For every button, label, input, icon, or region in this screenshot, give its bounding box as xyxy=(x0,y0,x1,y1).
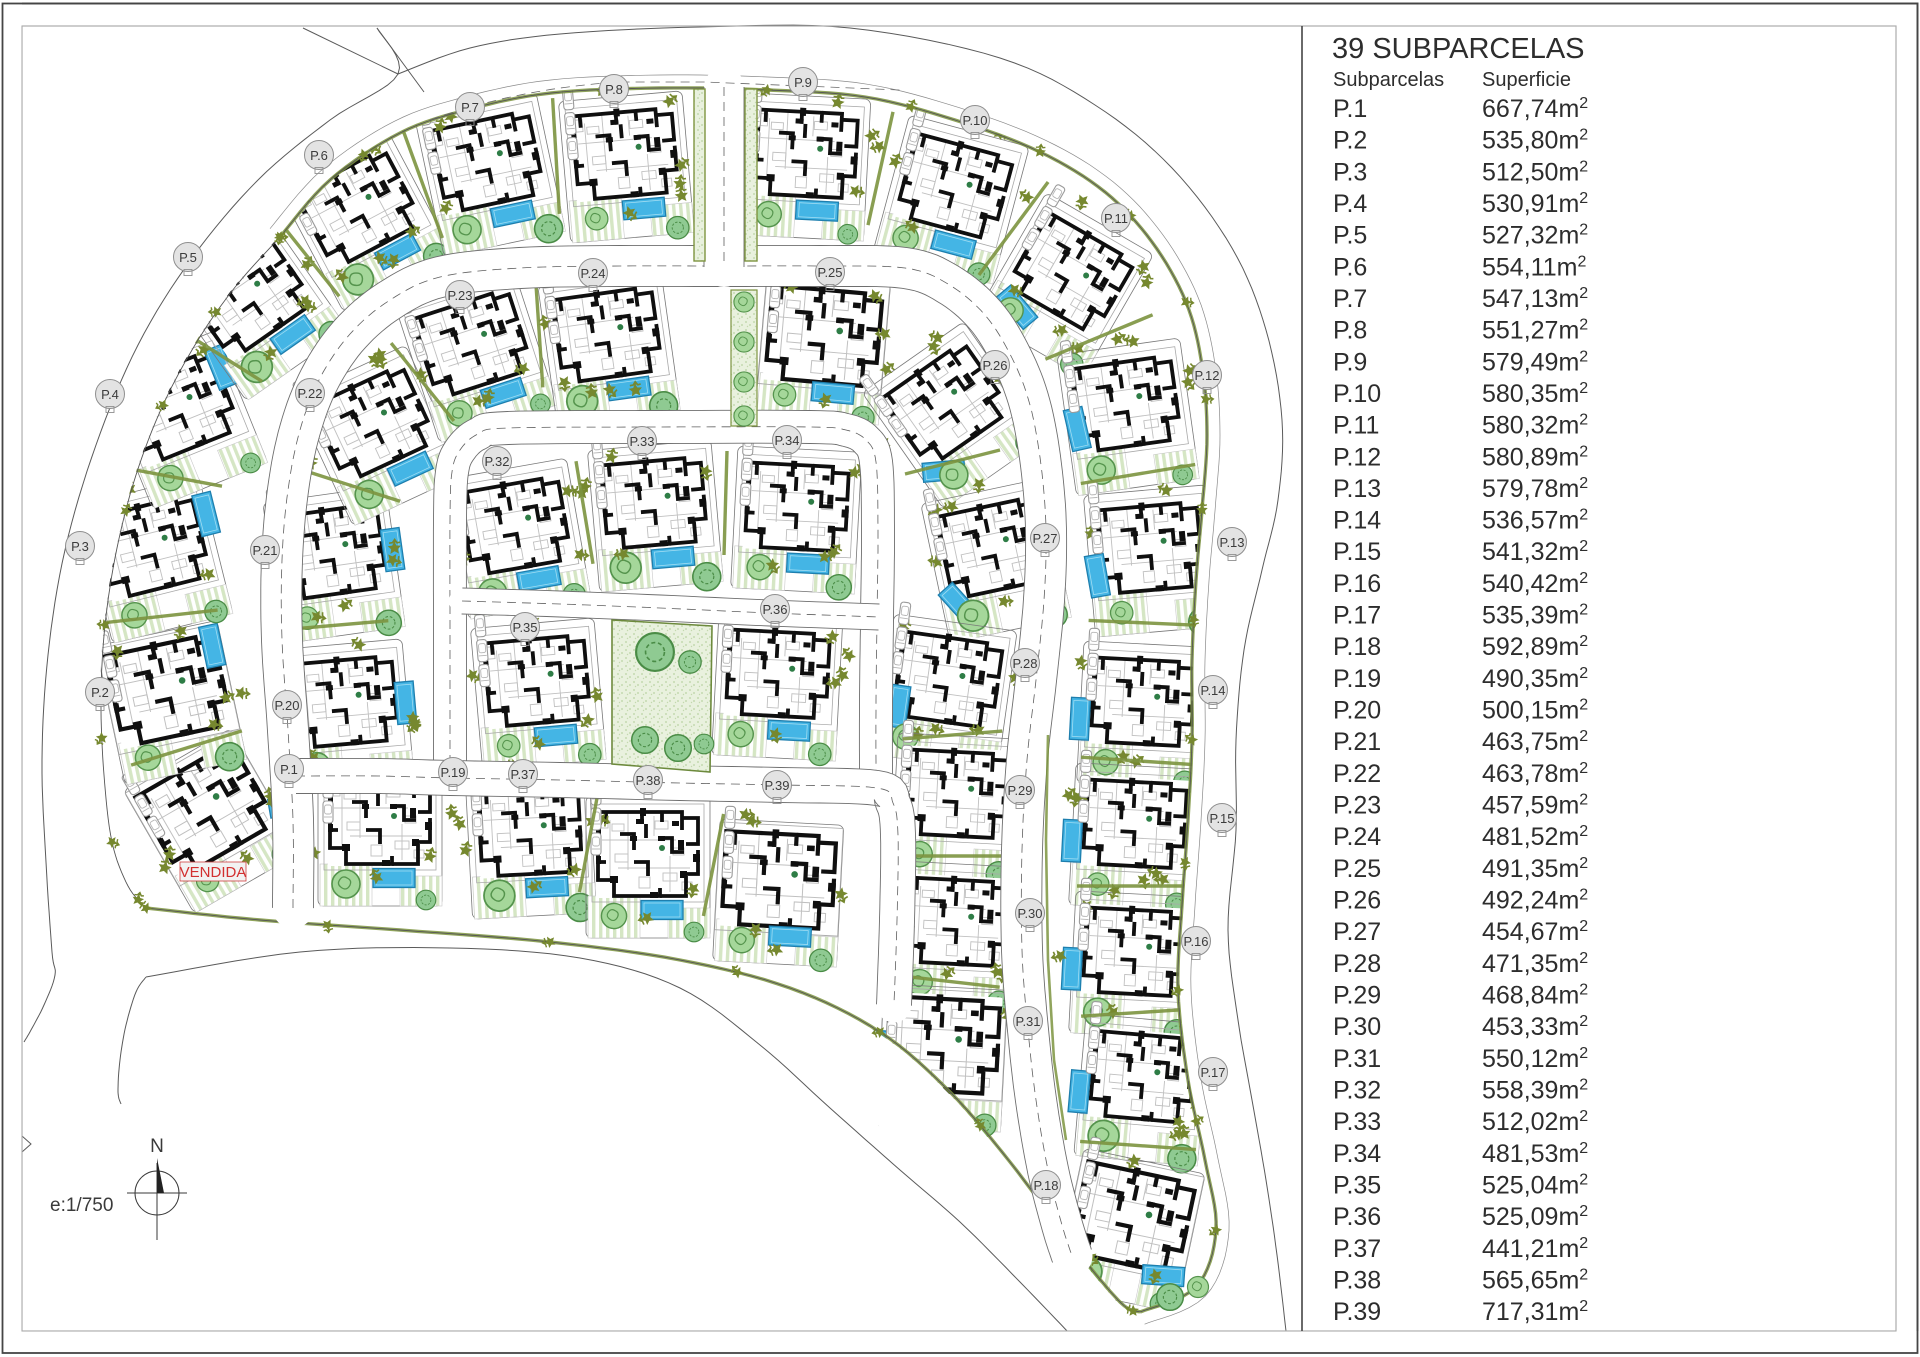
svg-text:490,35m2: 490,35m2 xyxy=(1482,665,1588,693)
svg-text:P.38: P.38 xyxy=(635,773,660,788)
svg-text:P.2: P.2 xyxy=(1333,127,1367,155)
svg-text:P.23: P.23 xyxy=(447,288,472,303)
svg-text:P.35: P.35 xyxy=(1333,1171,1381,1199)
svg-text:P.37: P.37 xyxy=(510,767,535,782)
svg-text:P.36: P.36 xyxy=(1333,1203,1381,1231)
svg-text:P.6: P.6 xyxy=(1333,253,1367,281)
svg-text:P.37: P.37 xyxy=(1333,1235,1381,1263)
svg-text:P.12: P.12 xyxy=(1333,443,1381,471)
svg-text:P.5: P.5 xyxy=(1333,222,1367,250)
svg-text:P.26: P.26 xyxy=(1333,887,1381,915)
svg-text:P.9: P.9 xyxy=(794,75,812,90)
svg-text:P.16: P.16 xyxy=(1183,934,1208,949)
svg-text:P.20: P.20 xyxy=(274,698,299,713)
svg-text:535,80m2: 535,80m2 xyxy=(1482,127,1588,155)
svg-text:P.31: P.31 xyxy=(1015,1014,1040,1029)
svg-text:P.1: P.1 xyxy=(280,762,298,777)
svg-text:550,12m2: 550,12m2 xyxy=(1482,1045,1588,1073)
svg-text:580,32m2: 580,32m2 xyxy=(1482,412,1588,440)
svg-text:535,39m2: 535,39m2 xyxy=(1482,602,1588,630)
svg-text:457,59m2: 457,59m2 xyxy=(1482,792,1588,820)
svg-text:P.24: P.24 xyxy=(580,266,605,281)
svg-text:491,35m2: 491,35m2 xyxy=(1482,855,1588,883)
svg-text:547,13m2: 547,13m2 xyxy=(1482,285,1588,313)
svg-text:463,78m2: 463,78m2 xyxy=(1482,760,1588,788)
svg-text:P.28: P.28 xyxy=(1012,656,1037,671)
svg-text:P.8: P.8 xyxy=(1333,317,1367,345)
svg-text:453,33m2: 453,33m2 xyxy=(1482,1013,1588,1041)
svg-text:481,52m2: 481,52m2 xyxy=(1482,823,1588,851)
svg-text:P.25: P.25 xyxy=(817,265,842,280)
svg-text:525,04m2: 525,04m2 xyxy=(1482,1171,1588,1199)
svg-text:P.10: P.10 xyxy=(962,113,987,128)
svg-text:P.34: P.34 xyxy=(1333,1140,1381,1168)
svg-text:P.13: P.13 xyxy=(1219,535,1244,550)
svg-text:481,53m2: 481,53m2 xyxy=(1482,1140,1588,1168)
svg-text:512,50m2: 512,50m2 xyxy=(1482,158,1588,186)
svg-text:P.39: P.39 xyxy=(1333,1298,1381,1326)
svg-text:579,78m2: 579,78m2 xyxy=(1482,475,1588,503)
svg-text:P.38: P.38 xyxy=(1333,1266,1381,1294)
svg-text:P.15: P.15 xyxy=(1209,811,1234,826)
svg-text:P.2: P.2 xyxy=(91,685,109,700)
svg-text:P.24: P.24 xyxy=(1333,823,1381,851)
svg-text:P.16: P.16 xyxy=(1333,570,1381,598)
svg-text:P.15: P.15 xyxy=(1333,538,1381,566)
svg-text:P.5: P.5 xyxy=(179,250,197,265)
svg-text:P.17: P.17 xyxy=(1333,602,1381,630)
svg-text:VENDIDA: VENDIDA xyxy=(180,864,247,881)
svg-text:Superficie: Superficie xyxy=(1482,69,1571,91)
svg-text:500,15m2: 500,15m2 xyxy=(1482,697,1588,725)
svg-text:P.22: P.22 xyxy=(297,386,322,401)
svg-text:P.19: P.19 xyxy=(440,765,465,780)
svg-text:P.1: P.1 xyxy=(1333,95,1367,123)
svg-text:471,35m2: 471,35m2 xyxy=(1482,950,1588,978)
svg-text:P.7: P.7 xyxy=(1333,285,1367,313)
svg-text:P.27: P.27 xyxy=(1333,918,1381,946)
svg-text:441,21m2: 441,21m2 xyxy=(1482,1235,1588,1263)
svg-text:554,11m2: 554,11m2 xyxy=(1482,253,1586,281)
svg-text:P.3: P.3 xyxy=(1333,158,1367,186)
svg-text:P.18: P.18 xyxy=(1033,1178,1058,1193)
svg-text:P.29: P.29 xyxy=(1333,982,1381,1010)
svg-text:P.13: P.13 xyxy=(1333,475,1381,503)
svg-text:P.11: P.11 xyxy=(1104,211,1128,226)
svg-text:P.26: P.26 xyxy=(982,358,1007,373)
svg-text:540,42m2: 540,42m2 xyxy=(1482,570,1588,598)
svg-text:717,31m2: 717,31m2 xyxy=(1482,1298,1588,1326)
svg-text:P.35: P.35 xyxy=(512,620,537,635)
svg-text:P.6: P.6 xyxy=(310,148,328,163)
svg-text:492,24m2: 492,24m2 xyxy=(1482,887,1588,915)
svg-text:565,65m2: 565,65m2 xyxy=(1482,1266,1588,1294)
svg-text:P.36: P.36 xyxy=(762,602,787,617)
svg-text:P.4: P.4 xyxy=(101,387,119,402)
svg-text:P.25: P.25 xyxy=(1333,855,1381,883)
svg-text:527,32m2: 527,32m2 xyxy=(1482,222,1588,250)
svg-text:558,39m2: 558,39m2 xyxy=(1482,1077,1588,1105)
svg-text:P.11: P.11 xyxy=(1333,412,1379,440)
svg-text:39 SUBPARCELAS: 39 SUBPARCELAS xyxy=(1332,33,1585,65)
svg-text:P.8: P.8 xyxy=(605,82,623,97)
svg-text:P.28: P.28 xyxy=(1333,950,1381,978)
svg-text:P.32: P.32 xyxy=(1333,1077,1381,1105)
svg-text:P.9: P.9 xyxy=(1333,348,1367,376)
svg-text:P.14: P.14 xyxy=(1333,507,1381,535)
svg-text:P.12: P.12 xyxy=(1194,368,1219,383)
svg-text:579,49m2: 579,49m2 xyxy=(1482,348,1588,376)
svg-text:551,27m2: 551,27m2 xyxy=(1482,317,1588,345)
svg-text:541,32m2: 541,32m2 xyxy=(1482,538,1588,566)
svg-text:P.17: P.17 xyxy=(1200,1065,1225,1080)
svg-text:592,89m2: 592,89m2 xyxy=(1482,633,1588,661)
svg-text:580,35m2: 580,35m2 xyxy=(1482,380,1588,408)
svg-text:454,67m2: 454,67m2 xyxy=(1482,918,1588,946)
svg-text:e:1/750: e:1/750 xyxy=(50,1195,113,1216)
svg-text:P.33: P.33 xyxy=(1333,1108,1381,1136)
svg-text:536,57m2: 536,57m2 xyxy=(1482,507,1588,535)
svg-text:P.18: P.18 xyxy=(1333,633,1381,661)
svg-text:512,02m2: 512,02m2 xyxy=(1482,1108,1588,1136)
svg-text:P.27: P.27 xyxy=(1032,531,1057,546)
svg-text:P.7: P.7 xyxy=(461,100,479,115)
svg-text:P.3: P.3 xyxy=(71,539,89,554)
svg-text:P.33: P.33 xyxy=(629,434,654,449)
svg-text:P.29: P.29 xyxy=(1007,783,1032,798)
svg-text:P.21: P.21 xyxy=(252,543,277,558)
svg-text:P.23: P.23 xyxy=(1333,792,1381,820)
svg-text:P.30: P.30 xyxy=(1333,1013,1381,1041)
svg-text:P.31: P.31 xyxy=(1333,1045,1381,1073)
svg-text:P.4: P.4 xyxy=(1333,190,1367,218)
svg-text:P.14: P.14 xyxy=(1200,683,1225,698)
svg-text:580,89m2: 580,89m2 xyxy=(1482,443,1588,471)
svg-text:P.34: P.34 xyxy=(774,433,799,448)
svg-text:463,75m2: 463,75m2 xyxy=(1482,728,1588,756)
svg-text:N: N xyxy=(150,1136,164,1157)
svg-text:P.39: P.39 xyxy=(764,778,789,793)
svg-text:P.10: P.10 xyxy=(1333,380,1381,408)
svg-text:P.30: P.30 xyxy=(1017,906,1042,921)
svg-text:530,91m2: 530,91m2 xyxy=(1482,190,1588,218)
svg-text:P.32: P.32 xyxy=(484,454,509,469)
svg-text:P.20: P.20 xyxy=(1333,697,1381,725)
svg-text:468,84m2: 468,84m2 xyxy=(1482,982,1588,1010)
svg-text:P.19: P.19 xyxy=(1333,665,1381,693)
svg-text:667,74m2: 667,74m2 xyxy=(1482,95,1588,123)
svg-text:P.22: P.22 xyxy=(1333,760,1381,788)
svg-text:525,09m2: 525,09m2 xyxy=(1482,1203,1588,1231)
svg-text:P.21: P.21 xyxy=(1333,728,1381,756)
svg-text:Subparcelas: Subparcelas xyxy=(1333,69,1444,91)
